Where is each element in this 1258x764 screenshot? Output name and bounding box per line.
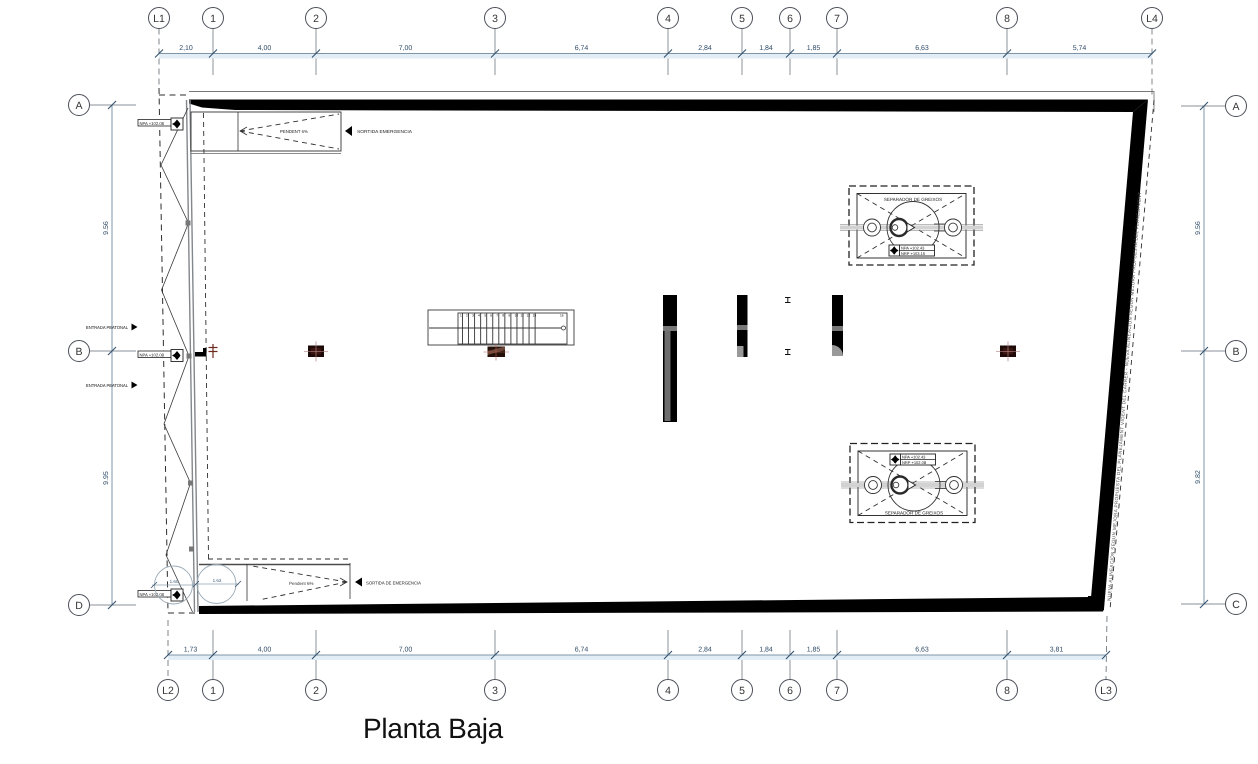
svg-text:2: 2 bbox=[466, 314, 468, 318]
svg-text:8: 8 bbox=[1004, 13, 1010, 25]
svg-text:2,84: 2,84 bbox=[698, 647, 712, 654]
svg-text:PENDENT 6%: PENDENT 6% bbox=[280, 129, 308, 134]
svg-text:4: 4 bbox=[665, 685, 671, 697]
svg-text:C: C bbox=[1232, 599, 1240, 611]
svg-text:NRP +102.08: NRP +102.08 bbox=[902, 460, 927, 465]
svg-text:NRP +103.15: NRP +103.15 bbox=[901, 251, 926, 256]
svg-text:5,74: 5,74 bbox=[1073, 45, 1087, 52]
svg-text:ENTRADA PEATONAL: ENTRADA PEATONAL bbox=[86, 325, 129, 330]
svg-text:3,81: 3,81 bbox=[1050, 647, 1064, 654]
svg-text:L4: L4 bbox=[1146, 13, 1158, 25]
svg-text:11: 11 bbox=[521, 314, 525, 318]
svg-text:B: B bbox=[1232, 346, 1239, 358]
svg-text:5: 5 bbox=[484, 314, 486, 318]
svg-text:3: 3 bbox=[472, 314, 474, 318]
svg-text:ENTRADA PEATONAL: ENTRADA PEATONAL bbox=[86, 383, 129, 388]
svg-text:6: 6 bbox=[787, 13, 793, 25]
svg-text:L2: L2 bbox=[162, 685, 174, 697]
svg-text:2,84: 2,84 bbox=[698, 45, 712, 52]
svg-text:SEPARADOR DE GREIXOS: SEPARADOR DE GREIXOS bbox=[885, 511, 943, 516]
svg-text:1,85: 1,85 bbox=[807, 647, 821, 654]
svg-text:3: 3 bbox=[492, 685, 498, 697]
svg-text:1,73: 1,73 bbox=[184, 647, 198, 654]
svg-text:1,84: 1,84 bbox=[759, 647, 773, 654]
svg-text:1.60: 1.60 bbox=[170, 579, 179, 584]
svg-text:8: 8 bbox=[1004, 685, 1010, 697]
svg-text:7: 7 bbox=[496, 314, 498, 318]
svg-text:2: 2 bbox=[313, 685, 319, 697]
svg-text:2,10: 2,10 bbox=[179, 45, 193, 52]
svg-text:6: 6 bbox=[787, 685, 793, 697]
svg-text:4: 4 bbox=[665, 13, 671, 25]
svg-text:6,74: 6,74 bbox=[575, 647, 589, 654]
svg-text:Planta Baja: Planta Baja bbox=[363, 713, 504, 744]
svg-text:12: 12 bbox=[527, 314, 531, 318]
svg-text:L3: L3 bbox=[1100, 685, 1112, 697]
svg-text:SORTIDA DE EMERGENCIA: SORTIDA DE EMERGENCIA bbox=[366, 581, 421, 586]
svg-text:9.56: 9.56 bbox=[1195, 221, 1202, 235]
svg-text:2: 2 bbox=[313, 13, 319, 25]
svg-text:A: A bbox=[75, 100, 82, 112]
svg-text:4,00: 4,00 bbox=[258, 45, 272, 52]
svg-text:9: 9 bbox=[508, 314, 510, 318]
svg-text:NPA +102.43: NPA +102.43 bbox=[901, 246, 925, 251]
svg-text:6: 6 bbox=[490, 314, 492, 318]
svg-text:SORTIDA EMERGENCIA: SORTIDA EMERGENCIA bbox=[357, 129, 412, 134]
svg-text:7,00: 7,00 bbox=[399, 45, 413, 52]
svg-text:D: D bbox=[75, 600, 83, 612]
svg-text:8: 8 bbox=[502, 314, 504, 318]
svg-text:9.82: 9.82 bbox=[1195, 470, 1202, 484]
svg-text:1: 1 bbox=[460, 314, 462, 318]
svg-text:6,74: 6,74 bbox=[575, 45, 589, 52]
svg-text:1: 1 bbox=[210, 13, 216, 25]
svg-text:10: 10 bbox=[514, 314, 518, 318]
svg-text:Pendent 6%: Pendent 6% bbox=[289, 581, 314, 586]
svg-text:9.56: 9.56 bbox=[103, 221, 110, 235]
svg-text:NPA +102.08: NPA +102.08 bbox=[140, 592, 165, 597]
svg-text:9.95: 9.95 bbox=[103, 471, 110, 485]
svg-text:L1: L1 bbox=[153, 13, 165, 25]
svg-text:1.63: 1.63 bbox=[213, 578, 222, 583]
svg-text:NPA +102.43: NPA +102.43 bbox=[902, 455, 926, 460]
svg-text:NPA +102.08: NPA +102.08 bbox=[140, 121, 165, 126]
svg-text:1: 1 bbox=[210, 685, 216, 697]
svg-text:6,63: 6,63 bbox=[915, 45, 929, 52]
svg-text:7: 7 bbox=[834, 13, 840, 25]
svg-text:1,84: 1,84 bbox=[759, 45, 773, 52]
svg-text:3: 3 bbox=[492, 13, 498, 25]
svg-text:A: A bbox=[1232, 101, 1239, 113]
svg-text:4: 4 bbox=[478, 314, 480, 318]
svg-text:1,85: 1,85 bbox=[807, 45, 821, 52]
svg-text:B: B bbox=[75, 346, 82, 358]
svg-text:5: 5 bbox=[739, 13, 745, 25]
svg-text:4,00: 4,00 bbox=[258, 647, 272, 654]
svg-text:NPA +102.08: NPA +102.08 bbox=[140, 352, 165, 357]
svg-text:6,63: 6,63 bbox=[915, 647, 929, 654]
svg-text:SEPARADOR DE GREIXOS: SEPARADOR DE GREIXOS bbox=[884, 197, 942, 202]
svg-text:7: 7 bbox=[834, 685, 840, 697]
svg-text:7,00: 7,00 bbox=[399, 647, 413, 654]
svg-text:13: 13 bbox=[533, 314, 537, 318]
svg-text:16: 16 bbox=[560, 314, 564, 318]
svg-text:5: 5 bbox=[739, 685, 745, 697]
